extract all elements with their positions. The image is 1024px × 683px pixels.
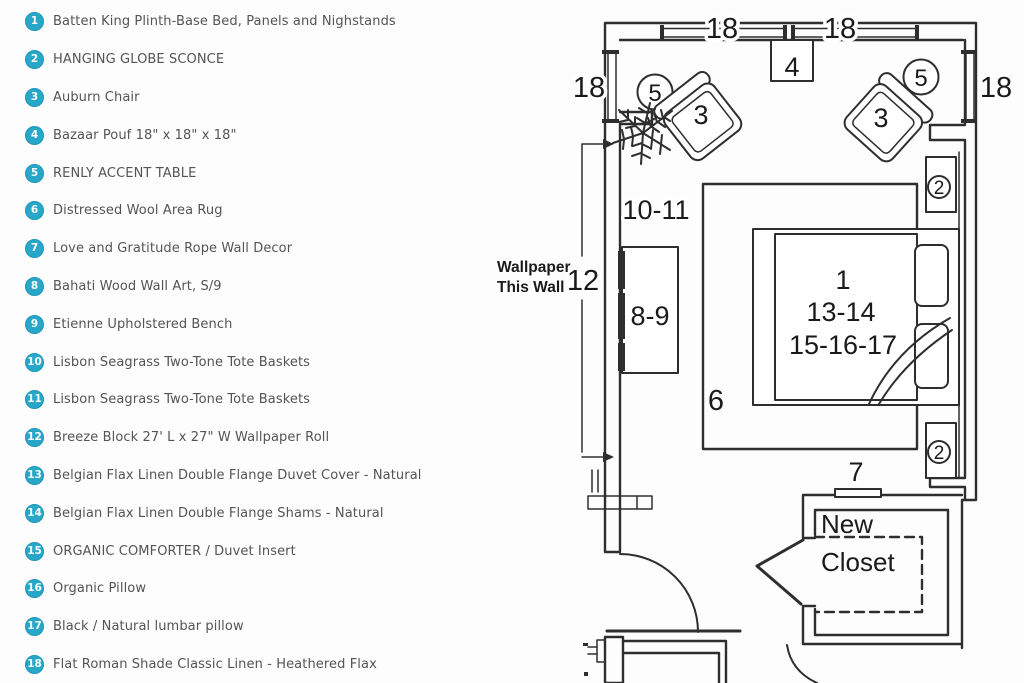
page: 1Batten King Plinth-Base Bed, Panels and… (0, 0, 1024, 683)
rope-label: 7 (848, 457, 863, 487)
closet-door (757, 540, 803, 604)
sconce-bottom-label: 2 (934, 443, 945, 464)
left-window (608, 53, 616, 120)
baskets-label: 10-11 (622, 195, 689, 225)
dim-left-label: 18 (573, 72, 605, 104)
wallpaper-dimension (582, 139, 614, 462)
chair-right-label: 3 (873, 103, 888, 133)
floor-plan: 18 18 18 18 4 5 5 3 3 2 2 10-11 12 8-9 6… (0, 0, 1024, 683)
door-jamb (605, 637, 623, 683)
bench-label: 8-9 (630, 301, 669, 331)
wallpaper-note-line2: This Wall (497, 279, 564, 296)
dim-top-left-label: 18 (706, 13, 738, 45)
right-window (966, 53, 974, 120)
table-left-label: 5 (648, 80, 661, 107)
sconce-top-label: 2 (934, 178, 945, 199)
rope-wall-decor (835, 489, 881, 497)
entry-door-arc (620, 554, 698, 632)
arrow-top-icon (603, 139, 614, 149)
rug-label: 6 (708, 385, 724, 417)
dim-top-right-label: 18 (824, 13, 856, 45)
table-right-label: 5 (914, 65, 927, 92)
closet-label-line1: New (821, 509, 873, 539)
lower-door-arc (787, 645, 817, 683)
bed-label-3: 15-16-17 (789, 330, 897, 360)
pillow-top (915, 245, 948, 306)
arrow-bottom-icon (603, 452, 614, 462)
closet-label-line2: Closet (821, 547, 895, 577)
pouf-label: 4 (784, 52, 799, 82)
wallpaper-dim-label: 12 (567, 265, 599, 297)
dim-right-label: 18 (980, 72, 1012, 104)
bed-label-2: 13-14 (806, 297, 875, 327)
chair-left-label: 3 (693, 100, 708, 130)
wallpaper-note-line1: Wallpaper (497, 259, 571, 276)
bed-label-1: 1 (835, 265, 850, 295)
